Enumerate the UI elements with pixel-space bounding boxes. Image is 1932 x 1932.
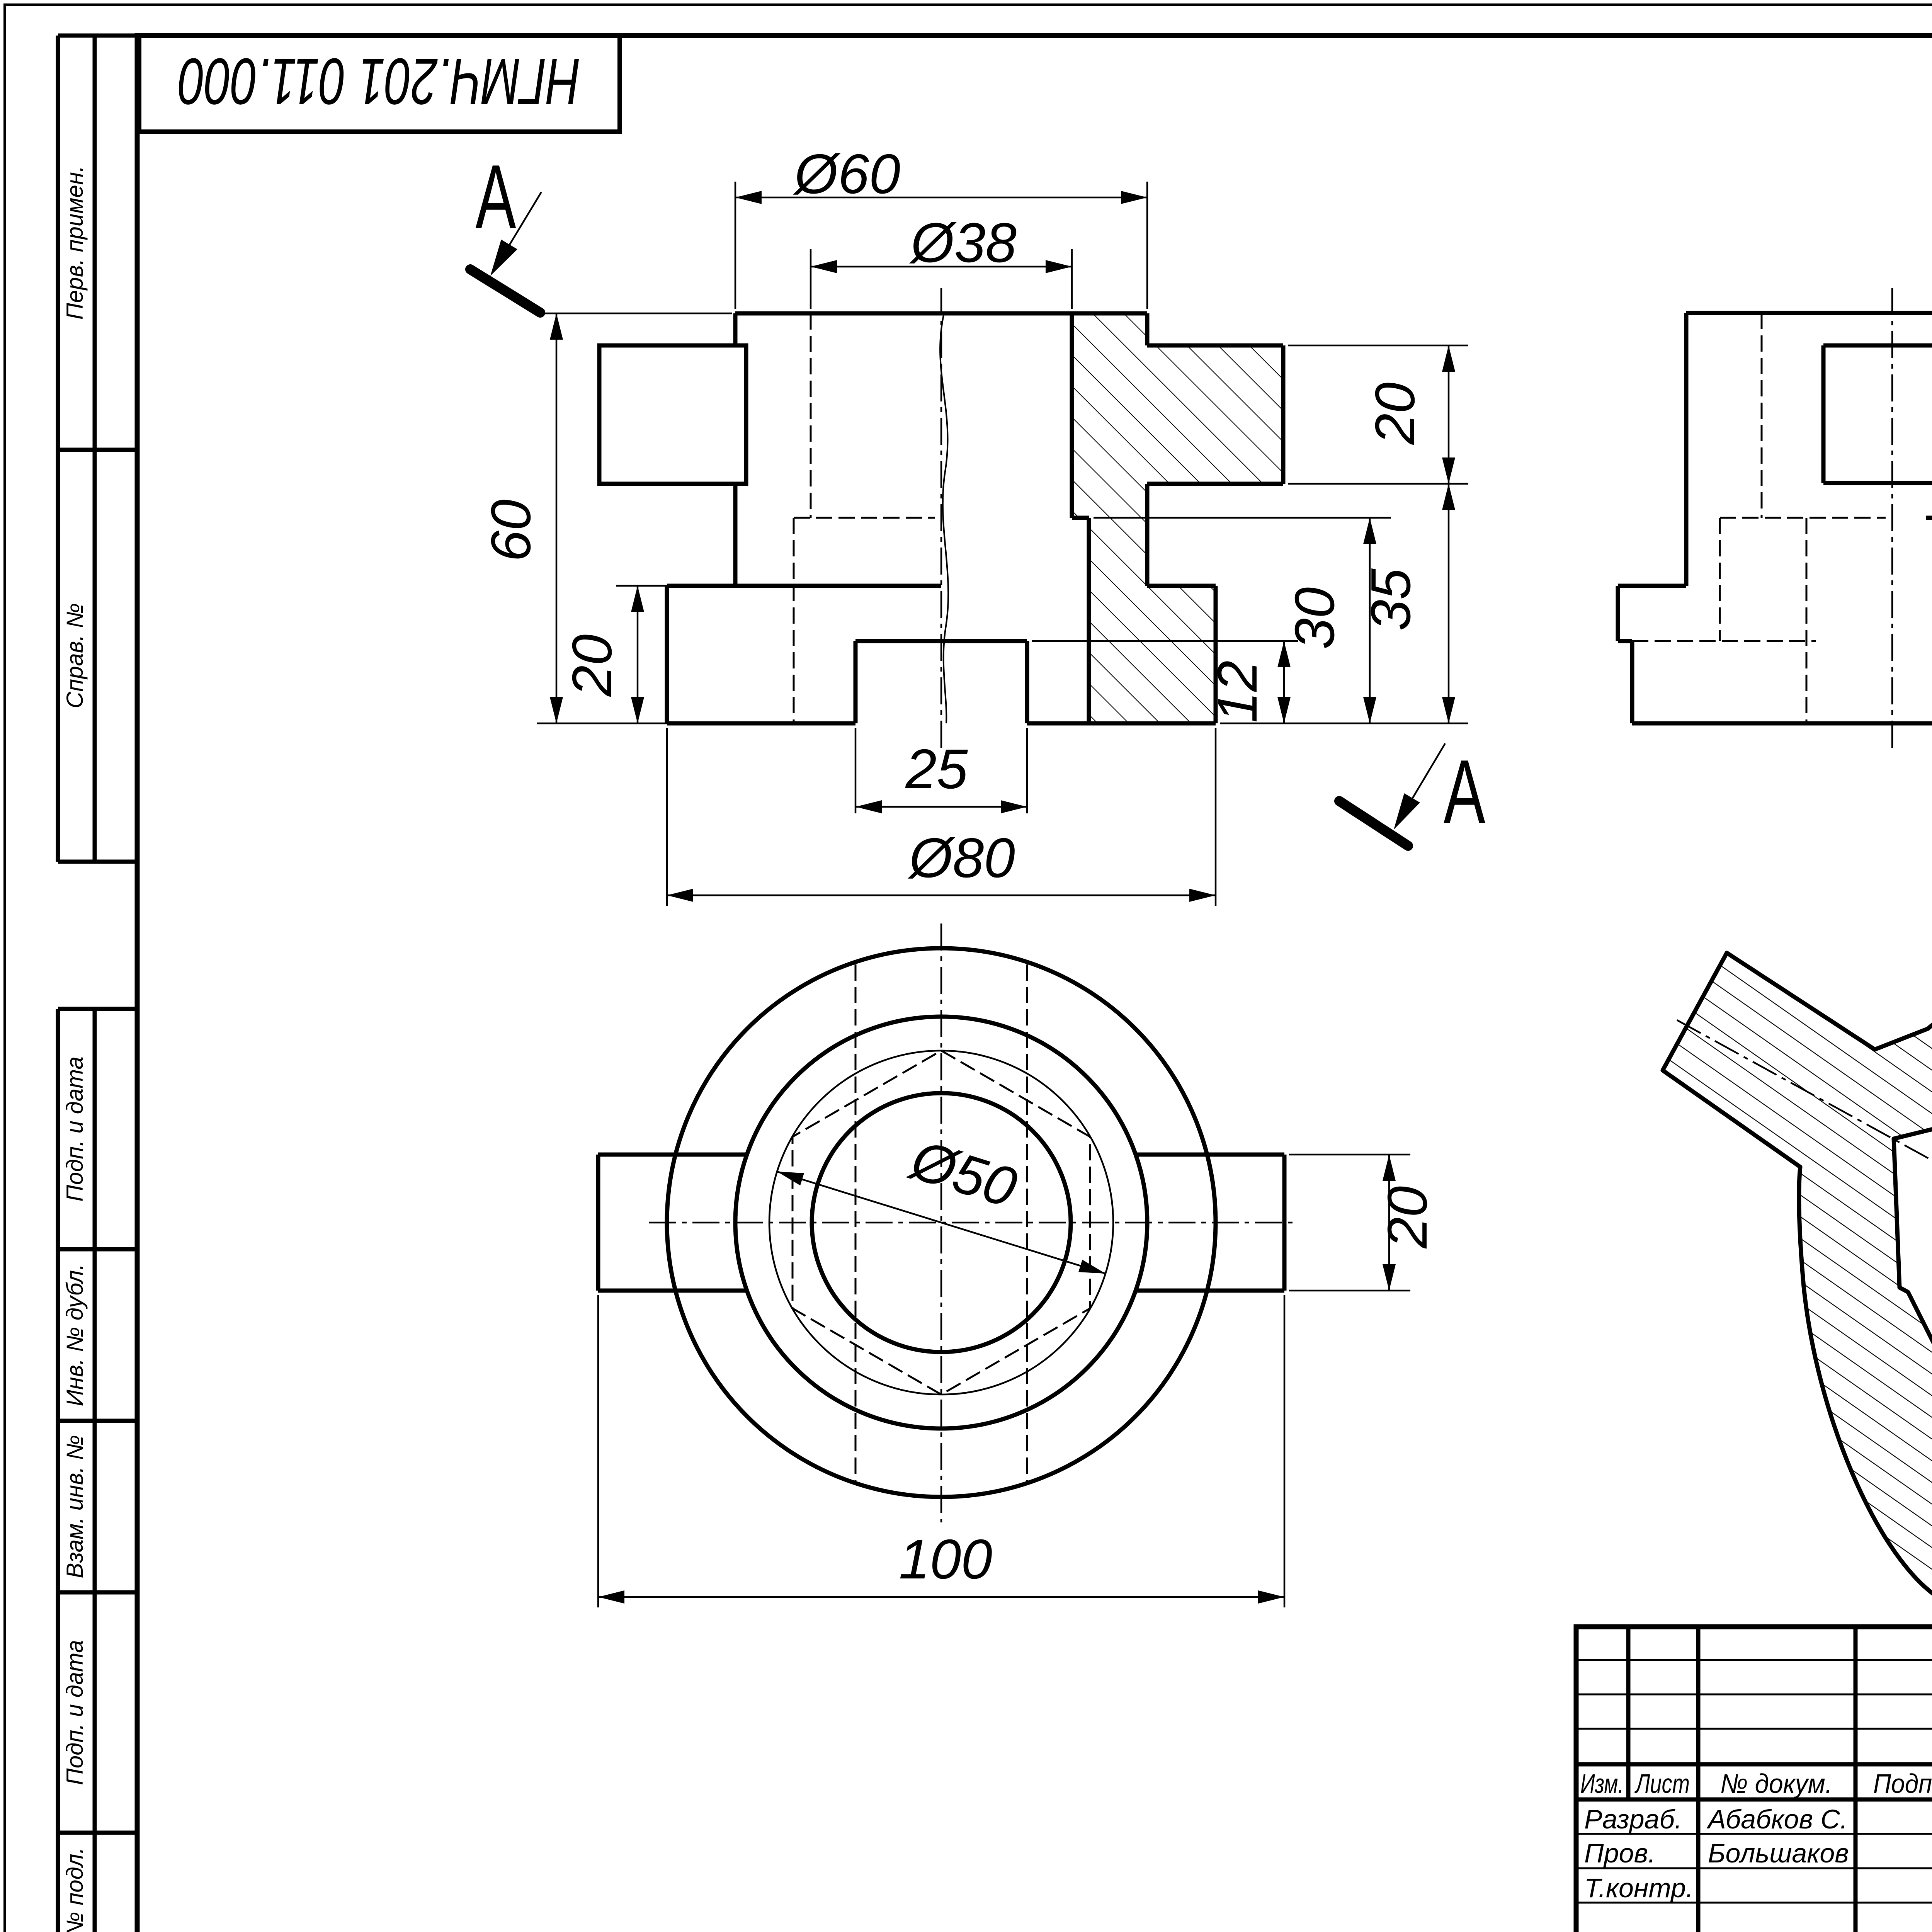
svg-text:Перв. примен.: Перв. примен. — [62, 166, 88, 320]
svg-text:НГМЧ.201 011.000: НГМЧ.201 011.000 — [179, 44, 580, 118]
svg-text:Подп. и дата: Подп. и дата — [62, 1640, 88, 1785]
svg-text:Т.контр.: Т.контр. — [1584, 1873, 1693, 1903]
svg-text:Абабков С.: Абабков С. — [1706, 1804, 1848, 1834]
svg-text:Справ. №: Справ. № — [62, 603, 88, 709]
svg-text:30: 30 — [1283, 587, 1346, 649]
svg-text:20: 20 — [1364, 382, 1426, 445]
svg-text:Изм.: Изм. — [1580, 1769, 1624, 1799]
svg-text:100: 100 — [899, 1528, 992, 1590]
svg-text:35: 35 — [1359, 568, 1422, 631]
svg-text:Подп. и дата: Подп. и дата — [62, 1056, 88, 1202]
svg-text:20: 20 — [561, 634, 623, 697]
svg-text:Разраб.: Разраб. — [1584, 1804, 1682, 1834]
svg-text:12: 12 — [1206, 660, 1269, 723]
svg-text:А: А — [476, 146, 516, 247]
svg-text:Ø38: Ø38 — [909, 211, 1017, 274]
svg-text:20: 20 — [1376, 1186, 1439, 1248]
svg-text:№ докум.: № докум. — [1720, 1769, 1832, 1799]
svg-text:Инв. № подл.: Инв. № подл. — [62, 1847, 88, 1932]
svg-text:А: А — [1444, 741, 1485, 842]
svg-text:Ø80: Ø80 — [908, 827, 1015, 889]
svg-text:Пров.: Пров. — [1584, 1838, 1656, 1868]
svg-text:Ø60: Ø60 — [793, 143, 900, 205]
svg-text:Подп.: Подп. — [1873, 1769, 1932, 1799]
svg-text:60: 60 — [480, 499, 542, 561]
svg-text:Лист: Лист — [1634, 1769, 1690, 1799]
svg-text:Большаков: Большаков — [1708, 1838, 1849, 1868]
svg-text:25: 25 — [905, 738, 968, 800]
svg-text:Взам. инв. №: Взам. инв. № — [62, 1435, 88, 1578]
svg-text:Инв. № дубл.: Инв. № дубл. — [62, 1264, 88, 1406]
